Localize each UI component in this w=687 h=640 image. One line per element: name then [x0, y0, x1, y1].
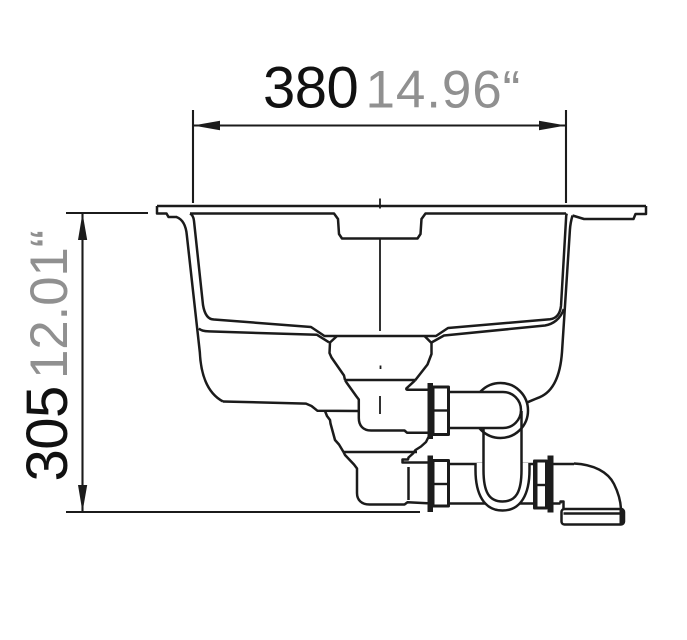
svg-text:14.96“: 14.96“: [366, 61, 522, 120]
svg-text:380: 380: [263, 56, 358, 121]
svg-text:305: 305: [15, 386, 80, 481]
svg-text:12.01“: 12.01“: [20, 230, 79, 379]
